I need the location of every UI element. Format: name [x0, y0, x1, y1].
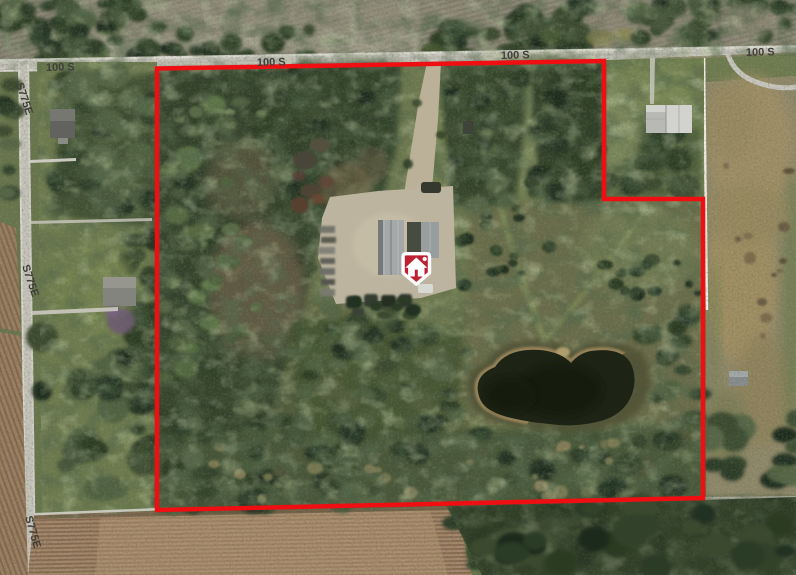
svg-text:100 S: 100 S — [501, 49, 530, 62]
svg-text:100 S: 100 S — [257, 56, 286, 69]
svg-text:100 S: 100 S — [746, 46, 775, 59]
svg-text:100 S: 100 S — [46, 61, 75, 74]
